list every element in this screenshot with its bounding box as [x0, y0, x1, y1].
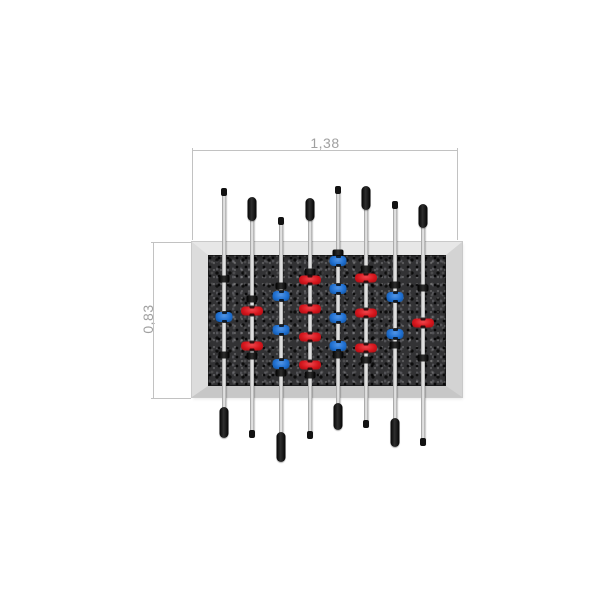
rod-4-top-handle	[306, 198, 315, 221]
rod-6-bumper	[361, 266, 372, 273]
rod-3-bottom-handle	[277, 432, 286, 462]
rods-layer	[0, 0, 600, 600]
drawing-canvas: 1,38 0,83	[0, 0, 600, 600]
rod-1-top-end-cap	[221, 188, 227, 196]
rod-5-top-end-cap	[335, 186, 341, 194]
rod-6-player-red	[355, 309, 377, 318]
rod-1-bumper	[219, 276, 230, 283]
rod-1-player-blue	[216, 312, 233, 322]
rod-7-player-blue	[387, 329, 404, 339]
rod-5-bar	[336, 190, 340, 406]
rod-1-bumper	[219, 352, 230, 359]
rod-5-bottom-handle	[334, 403, 343, 430]
rod-8-bumper	[418, 355, 429, 362]
rod-4-player-red	[299, 333, 321, 342]
rod-8-player-red	[412, 319, 434, 328]
rod-7-bar	[393, 205, 397, 421]
rod-2-bar	[250, 218, 254, 436]
rod-2-bumper	[247, 296, 258, 303]
rod-7-top-end-cap	[392, 201, 398, 209]
rod-5-player-blue	[330, 284, 347, 294]
rod-1-bar	[222, 192, 226, 410]
rod-3-player-blue	[273, 359, 290, 369]
rod-3-bumper	[276, 370, 287, 377]
rod-2-bottom-end-cap	[249, 430, 255, 438]
rod-7-bottom-handle	[391, 418, 400, 447]
rod-4-player-red	[299, 276, 321, 285]
rod-2-player-red	[241, 342, 263, 351]
rod-8-bumper	[418, 285, 429, 292]
rod-6-top-handle	[362, 186, 371, 210]
rod-3-player-blue	[273, 325, 290, 335]
rod-6-bottom-end-cap	[363, 420, 369, 428]
rod-3-bumper	[276, 283, 287, 290]
rod-2-bumper	[247, 353, 258, 360]
rod-7-player-blue	[387, 292, 404, 302]
rod-4-bumper	[305, 372, 316, 379]
rod-8-top-handle	[419, 204, 428, 228]
rod-6-player-red	[355, 344, 377, 353]
rod-7-bumper	[390, 342, 401, 349]
rod-5-player-blue	[330, 341, 347, 351]
rod-4-player-red	[299, 305, 321, 314]
rod-6-bumper	[361, 357, 372, 364]
rod-5-player-blue	[330, 313, 347, 323]
rod-5-player-blue	[330, 256, 347, 266]
rod-7-bumper	[390, 282, 401, 289]
rod-8-bar	[421, 226, 425, 444]
rod-4-bar	[308, 219, 312, 436]
rod-3-top-end-cap	[278, 217, 284, 225]
rod-5-bumper	[333, 352, 344, 359]
rod-4-player-red	[299, 361, 321, 370]
rod-4-bottom-end-cap	[307, 431, 313, 439]
rod-2-top-handle	[248, 197, 257, 221]
rod-8-bottom-end-cap	[420, 438, 426, 446]
rod-2-player-red	[241, 307, 263, 316]
rod-1-bottom-handle	[220, 407, 229, 438]
rod-3-player-blue	[273, 291, 290, 301]
rod-6-player-red	[355, 274, 377, 283]
